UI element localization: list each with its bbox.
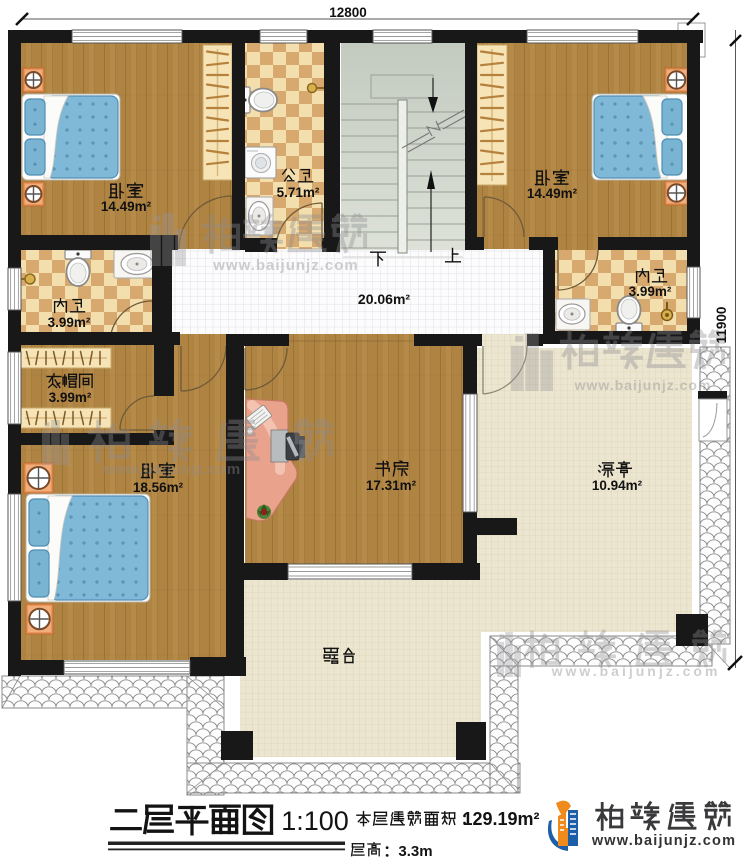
svg-text:www.baijunjz.com: www.baijunjz.com (574, 377, 712, 393)
svg-text:www.baijunjz.com: www.baijunjz.com (102, 461, 240, 478)
svg-text:3.99m²: 3.99m² (49, 390, 92, 405)
svg-text:11900: 11900 (714, 307, 729, 344)
svg-text:：3.3m: ：3.3m (383, 843, 432, 860)
svg-text:14.49m²: 14.49m² (527, 186, 578, 201)
svg-text:5.71m²: 5.71m² (277, 185, 320, 200)
svg-text:18.56m²: 18.56m² (133, 480, 184, 495)
svg-text:www.baijunjz.com: www.baijunjz.com (551, 663, 721, 679)
svg-text:14.49m²: 14.49m² (101, 199, 152, 214)
svg-text:129.19m²: 129.19m² (462, 809, 539, 829)
svg-text:3.99m²: 3.99m² (48, 315, 91, 330)
svg-text:www.baijunjz.com: www.baijunjz.com (212, 257, 358, 274)
svg-text:1:100: 1:100 (281, 806, 349, 836)
svg-text:www.baijunjz.com: www.baijunjz.com (591, 833, 736, 849)
svg-text:10.94m²: 10.94m² (592, 478, 643, 493)
svg-text:20.06m²: 20.06m² (358, 291, 410, 307)
svg-text:12800: 12800 (329, 5, 367, 20)
svg-text:3.99m²: 3.99m² (629, 284, 672, 299)
svg-text:17.31m²: 17.31m² (366, 478, 417, 493)
